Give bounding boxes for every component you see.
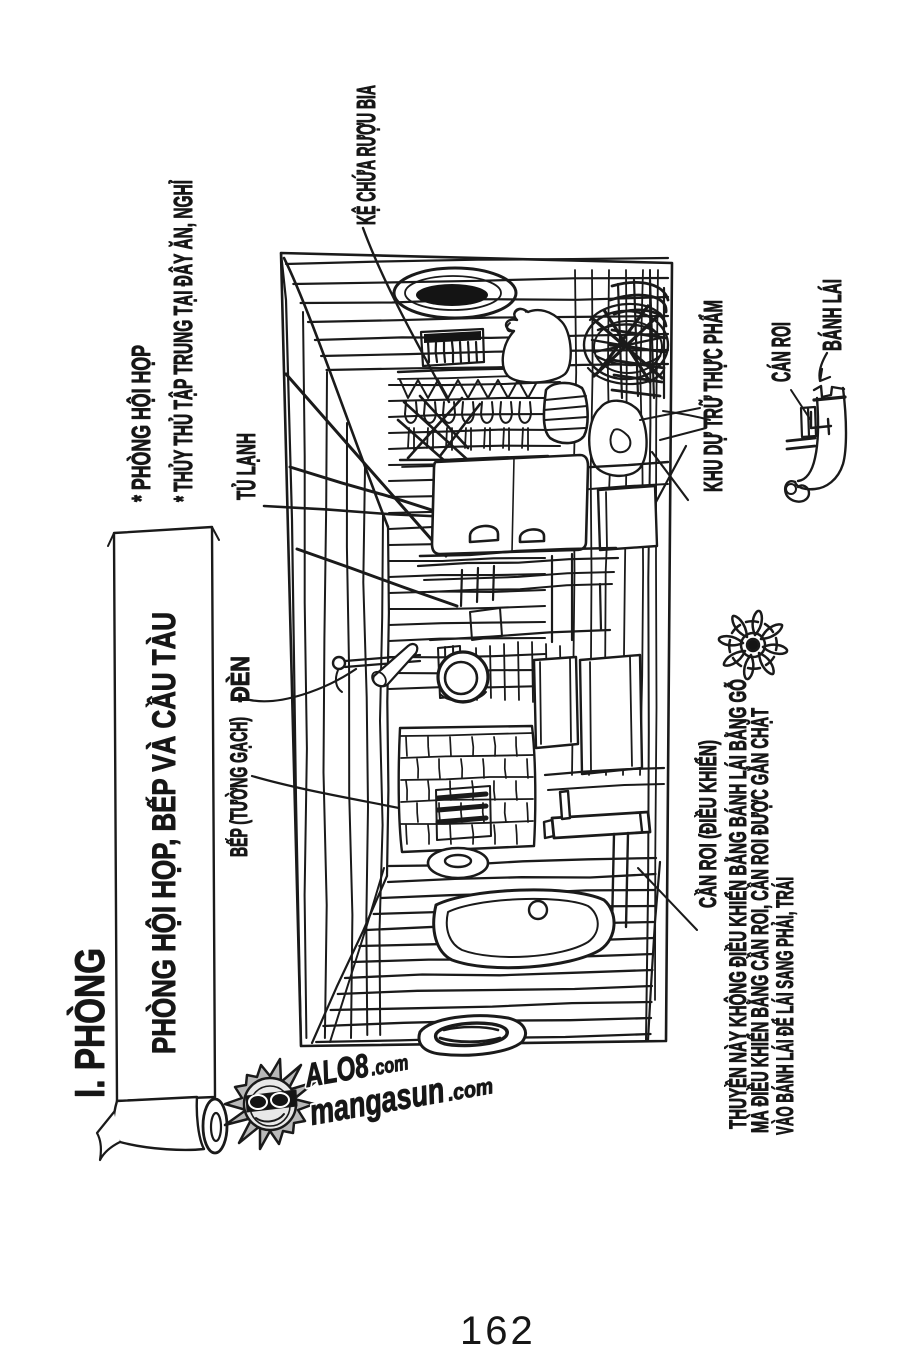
svg-text:* PHÒNG HỘI HỌP: * PHÒNG HỘI HỌP — [126, 345, 156, 502]
svg-text:TỦ LẠNH: TỦ LẠNH — [230, 433, 261, 500]
svg-text:MÀ ĐIỀU KHIỂN BẰNG CẦN ROI, CẦ: MÀ ĐIỀU KHIỂN BẰNG CẦN ROI, CẦN ROI ĐƯỢC… — [746, 708, 774, 1133]
svg-text:* THỦY THỦ TẬP TRUNG TẠI ĐÂY Ă: * THỦY THỦ TẬP TRUNG TẠI ĐÂY ĂN, NGHỈ — [167, 180, 198, 502]
svg-text:162: 162 — [460, 1309, 536, 1353]
svg-text:CÁN ROI: CÁN ROI — [766, 322, 796, 382]
svg-text:BẾP (TƯỜNG GẠCH): BẾP (TƯỜNG GẠCH) — [225, 717, 253, 857]
svg-text:PHÒNG HỘI HỌP, BẾP VÀ CẦU TÀU: PHÒNG HỘI HỌP, BẾP VÀ CẦU TÀU — [146, 612, 182, 1054]
svg-text:KHU DỰ TRỮ THỰC PHẨM: KHU DỰ TRỮ THỰC PHẨM — [698, 300, 728, 492]
svg-text:I. PHÒNG: I. PHÒNG — [65, 948, 113, 1098]
svg-text:VÀO BÁNH LÁI ĐỂ LÁI SANG PHẢI,: VÀO BÁNH LÁI ĐỂ LÁI SANG PHẢI, TRÁI — [770, 877, 799, 1135]
svg-text:KỆ CHỨA RƯỢU BIA: KỆ CHỨA RƯỢU BIA — [351, 85, 381, 225]
svg-text:ĐÈN: ĐÈN — [225, 656, 255, 702]
svg-text:BÁNH LÁI: BÁNH LÁI — [817, 279, 847, 351]
svg-text:CẦN ROI (ĐIỀU KHIỂN): CẦN ROI (ĐIỀU KHIỂN) — [694, 740, 722, 908]
